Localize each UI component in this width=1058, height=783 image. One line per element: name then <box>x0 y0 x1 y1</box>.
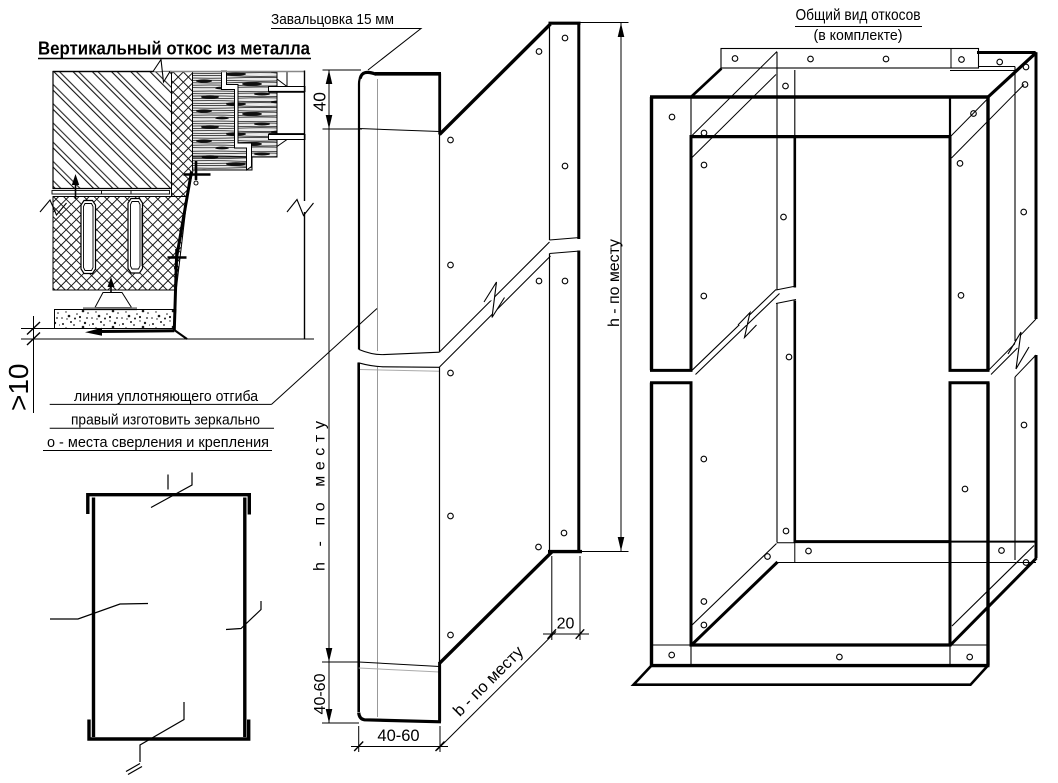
svg-text:Вертикальный откос из металла: Вертикальный откос из металла <box>38 39 311 59</box>
svg-text:40-60: 40-60 <box>377 727 419 745</box>
svg-text:о - места сверления и креплени: о - места сверления и крепления <box>47 434 269 451</box>
svg-text:>10: >10 <box>3 364 34 412</box>
svg-text:40: 40 <box>310 92 330 112</box>
svg-text:Завальцовка 15 мм: Завальцовка 15 мм <box>271 12 394 28</box>
svg-text:(в комплекте): (в комплекте) <box>814 27 903 44</box>
svg-text:линия уплотняющего отгиба: линия уплотняющего отгиба <box>74 388 259 405</box>
svg-text:40-60: 40-60 <box>312 673 329 714</box>
svg-text:Общий вид откосов: Общий вид откосов <box>796 7 921 24</box>
svg-text:20: 20 <box>557 616 575 633</box>
svg-text:правый изготовить зеркально: правый изготовить зеркально <box>71 412 260 429</box>
svg-text:h - по месту: h - по месту <box>606 239 623 327</box>
